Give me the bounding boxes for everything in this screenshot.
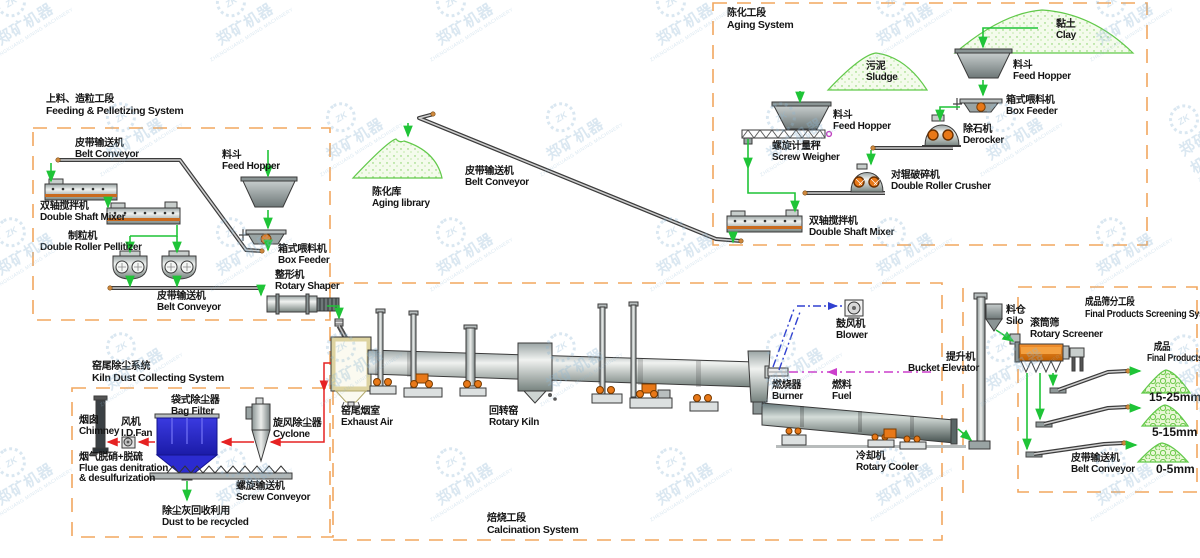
label-en: Cyclone bbox=[273, 430, 322, 441]
calcination-section-title: 焙烧工段 Calcination System bbox=[487, 514, 578, 535]
label-silo: 料仓 Silo bbox=[1006, 306, 1025, 327]
label-en: Chimney bbox=[79, 427, 119, 438]
label-zh: 除尘灰回收利用 bbox=[162, 507, 249, 518]
label-en: Rotary Cooler bbox=[856, 463, 918, 474]
title-zh: 陈化工段 bbox=[727, 9, 793, 20]
label-zh: 旋风除尘器 bbox=[273, 419, 322, 430]
label-chimney: 烟囱 Chimney bbox=[79, 416, 119, 437]
label-en: I.D.Fan bbox=[121, 429, 152, 440]
label-zh: 料斗 bbox=[833, 111, 891, 122]
label-en: Feed Hopper bbox=[1013, 72, 1071, 83]
double-roller-crusher bbox=[851, 164, 883, 192]
label-en: Silo bbox=[1006, 317, 1025, 328]
label-zh: 对辊破碎机 bbox=[891, 171, 991, 182]
label-en: Double Shaft Mixer bbox=[809, 228, 894, 239]
label-en: Belt Conveyor bbox=[465, 178, 529, 189]
label-zh: 箱式喂料机 bbox=[278, 245, 329, 256]
title-zh: 成品筛分工段 bbox=[1085, 298, 1200, 309]
label-belt-aging: 皮带输送机 Belt Conveyor bbox=[465, 167, 529, 188]
label-en: Rotary Kiln bbox=[489, 418, 539, 429]
title-zh: 窑尾除尘系统 bbox=[92, 362, 224, 373]
label-en: Blower bbox=[836, 331, 868, 342]
label-en: Box Feeder bbox=[278, 256, 329, 267]
label-zh: 制粒机 bbox=[68, 232, 142, 243]
label-cyclone: 旋风除尘器 Cyclone bbox=[273, 419, 322, 440]
label-zh: 窑尾烟室 bbox=[341, 407, 393, 418]
label-zh: 黏土 bbox=[1056, 20, 1076, 31]
box-feeder-feeding bbox=[239, 229, 286, 244]
label-screw-weigher: 螺旋计量秤 Screw Weigher bbox=[772, 142, 840, 163]
derocker bbox=[922, 115, 961, 146]
label-belt-conveyor-bottom: 皮带输送机 Belt Conveyor bbox=[157, 292, 221, 313]
exhaust-air-chamber bbox=[331, 337, 371, 407]
label-zh: 皮带输送机 bbox=[1071, 454, 1135, 465]
screening-belt-2 bbox=[1036, 405, 1130, 427]
calcination-equipment bbox=[331, 300, 966, 449]
label-dust-recycled: 除尘灰回收利用 Dust to be recycled bbox=[162, 507, 249, 528]
label-belt-screening: 皮带输送机 Belt Conveyor bbox=[1071, 454, 1135, 475]
size-text: 0-5mm bbox=[1156, 464, 1195, 475]
aging-library-pile bbox=[353, 139, 442, 178]
label-screw-conveyor: 螺旋输送机 Screw Conveyor bbox=[236, 482, 310, 503]
label-zh: 皮带输送机 bbox=[465, 167, 529, 178]
blower-icon bbox=[845, 300, 863, 319]
label-en: Bucket Elevator bbox=[908, 364, 979, 375]
label-zh: 双轴搅拌机 bbox=[40, 202, 125, 213]
label-zh: 燃料 bbox=[832, 381, 851, 392]
label-crusher: 对辊破碎机 Double Roller Crusher bbox=[891, 171, 991, 192]
title-en: Feeding & Pelletizing System bbox=[46, 106, 183, 117]
label-size-5-15: 5-15mm bbox=[1152, 427, 1197, 438]
feeding-bottom-belt bbox=[108, 286, 264, 290]
label-mixer-aging: 双轴搅拌机 Double Shaft Mixer bbox=[809, 217, 894, 238]
label-feed-hopper-clay: 料斗 Feed Hopper bbox=[1013, 61, 1071, 82]
label-en: Fuel bbox=[832, 392, 851, 403]
label-zh: 燃烧器 bbox=[772, 381, 803, 392]
label-zh: 烟气脱硝+脱硫 bbox=[79, 453, 168, 464]
label-en: Sludge bbox=[866, 73, 898, 84]
label-zh: 料斗 bbox=[1013, 61, 1071, 72]
size-text: 5-15mm bbox=[1152, 427, 1197, 438]
label-en: Belt Conveyor bbox=[75, 150, 139, 161]
title-en: Kiln Dust Collecting System bbox=[92, 373, 224, 384]
label-feed-hopper-feeding: 料斗 Feed Hopper bbox=[222, 151, 280, 172]
label-en: Bag Filter bbox=[171, 407, 220, 418]
label-zh: 冷却机 bbox=[856, 452, 918, 463]
cyclone bbox=[246, 398, 270, 461]
label-blower: 鼓风机 Blower bbox=[836, 320, 868, 341]
label-belt-conveyor-top: 皮带输送机 Belt Conveyor bbox=[75, 139, 139, 160]
label-en: Double Roller Crusher bbox=[891, 182, 991, 193]
dust-section-title: 窑尾除尘系统 Kiln Dust Collecting System bbox=[92, 362, 224, 383]
label-en: Feed Hopper bbox=[222, 162, 280, 173]
product-pile-0-5 bbox=[1138, 443, 1188, 462]
label-en: Clay bbox=[1056, 31, 1076, 42]
label-fuel: 燃料 Fuel bbox=[832, 381, 851, 402]
label-sludge: 污泥 Sludge bbox=[866, 62, 898, 83]
label-exhaust-air: 窑尾烟室 Exhaust Air bbox=[341, 407, 393, 428]
double-roller-pellitizer-1 bbox=[113, 251, 147, 279]
label-zh: 料仓 bbox=[1006, 306, 1025, 317]
label-en: Final Products bbox=[1147, 354, 1200, 365]
double-shaft-mixer-1 bbox=[45, 179, 117, 200]
label-zh: 整形机 bbox=[275, 271, 339, 282]
label-rotary-kiln: 回转窑 Rotary Kiln bbox=[489, 407, 539, 428]
label-en: Screw Conveyor bbox=[236, 493, 310, 504]
double-roller-pellitizer-2 bbox=[162, 251, 196, 279]
label-zh: 鼓风机 bbox=[836, 320, 868, 331]
label-box-feeder-feeding: 箱式喂料机 Box Feeder bbox=[278, 245, 329, 266]
label-zh: 污泥 bbox=[866, 62, 898, 73]
label-zh: 除石机 bbox=[963, 125, 1004, 136]
label-zh: 成品 bbox=[1154, 343, 1200, 354]
burner bbox=[765, 366, 788, 378]
feed-hopper-sludge bbox=[772, 102, 831, 129]
label-zh: 滚筒筛 bbox=[1030, 319, 1103, 330]
screw-conveyor bbox=[150, 466, 292, 479]
silo bbox=[986, 304, 1002, 331]
kiln-mid-chamber bbox=[518, 343, 557, 403]
label-zh: 皮带输送机 bbox=[157, 292, 221, 303]
label-zh: 皮带输送机 bbox=[75, 139, 139, 150]
label-size-15-25: 15-25mm bbox=[1149, 392, 1200, 403]
feeding-section-title: 上料、造粒工段 Feeding & Pelletizing System bbox=[46, 95, 183, 116]
label-box-feeder-clay: 箱式喂料机 Box Feeder bbox=[1006, 96, 1057, 117]
diagram-canvas bbox=[0, 0, 1200, 558]
label-zh: 双轴搅拌机 bbox=[809, 217, 894, 228]
label-rotary-screener: 滚筒筛 Rotary Screener bbox=[1030, 319, 1103, 340]
label-derocker: 除石机 Derocker bbox=[963, 125, 1004, 146]
label-en: Belt Conveyor bbox=[1071, 465, 1135, 476]
aging-section-title: 陈化工段 Aging System bbox=[727, 9, 793, 30]
label-en: Double Roller Pellitizer bbox=[40, 243, 142, 254]
label-zh: 螺旋输送机 bbox=[236, 482, 310, 493]
label-feed-hopper-sludge: 料斗 Feed Hopper bbox=[833, 111, 891, 132]
label-en: Dust to be recycled bbox=[162, 518, 249, 529]
label-en: Burner bbox=[772, 392, 803, 403]
label-en: Feed Hopper bbox=[833, 122, 891, 133]
clay-pile bbox=[955, 10, 1133, 53]
label-bucket-elevator: 提升机 Bucket Elevator bbox=[908, 353, 979, 374]
title-zh: 上料、造粒工段 bbox=[46, 95, 183, 106]
label-rotary-shaper: 整形机 Rotary Shaper bbox=[275, 271, 339, 292]
label-en: Aging library bbox=[372, 199, 430, 210]
label-zh: 箱式喂料机 bbox=[1006, 96, 1057, 107]
product-pile-5-15 bbox=[1142, 405, 1188, 426]
label-size-0-5: 0-5mm bbox=[1156, 464, 1195, 475]
label-en: Derocker bbox=[963, 136, 1004, 147]
process-flow-diagram: 上料、造粒工段 Feeding & Pelletizing System 陈化工… bbox=[0, 0, 1200, 558]
label-en: & desulfurization bbox=[79, 474, 168, 485]
double-shaft-mixer-aging bbox=[727, 210, 802, 232]
label-en: Rotary Shaper bbox=[275, 282, 339, 293]
label-aging-library: 陈化库 Aging library bbox=[372, 188, 430, 209]
label-clay: 黏土 Clay bbox=[1056, 20, 1076, 41]
label-en: Box Feeder bbox=[1006, 107, 1057, 118]
label-zh: 回转窑 bbox=[489, 407, 539, 418]
label-zh: 提升机 bbox=[946, 353, 979, 364]
box-feeder-clay bbox=[953, 98, 1002, 112]
title-en: Final Products Screening System bbox=[1085, 309, 1200, 320]
label-zh: 烟囱 bbox=[79, 416, 119, 427]
label-zh: 陈化库 bbox=[372, 188, 430, 199]
label-en: Screw Weigher bbox=[772, 153, 840, 164]
feed-hopper-feeding bbox=[241, 177, 297, 207]
label-flue-gas: 烟气脱硝+脱硫 Flue gas denitration & desulfuri… bbox=[79, 453, 168, 485]
label-zh: 袋式除尘器 bbox=[171, 396, 220, 407]
label-rotary-cooler: 冷却机 Rotary Cooler bbox=[856, 452, 918, 473]
air-line bbox=[773, 302, 844, 370]
title-en: Aging System bbox=[727, 20, 793, 31]
label-zh: 螺旋计量秤 bbox=[772, 142, 840, 153]
label-en: Double Shaft Mixer bbox=[40, 213, 125, 224]
label-burner: 燃烧器 Burner bbox=[772, 381, 803, 402]
size-text: 15-25mm bbox=[1149, 392, 1200, 403]
screening-belt-1 bbox=[1050, 369, 1130, 393]
label-en: Rotary Screener bbox=[1030, 330, 1103, 341]
label-en: Exhaust Air bbox=[341, 418, 393, 429]
title-zh: 焙烧工段 bbox=[487, 514, 578, 525]
title-en: Calcination System bbox=[487, 525, 578, 536]
rotary-shaper bbox=[267, 294, 339, 314]
label-bag-filter: 袋式除尘器 Bag Filter bbox=[171, 396, 220, 417]
screening-section-title: 成品筛分工段 Final Products Screening System bbox=[1085, 298, 1200, 319]
label-mixer-feeding: 双轴搅拌机 Double Shaft Mixer bbox=[40, 202, 125, 223]
label-id-fan: 风机 I.D.Fan bbox=[121, 418, 152, 439]
label-final-products: 成品 Final Products bbox=[1147, 343, 1200, 364]
label-en: Belt Conveyor bbox=[157, 303, 221, 314]
feed-hopper-clay bbox=[955, 49, 1012, 78]
label-zh: 风机 bbox=[121, 418, 152, 429]
rotary-cooler bbox=[762, 403, 966, 449]
label-pellitizer: 制粒机 Double Roller Pellitizer bbox=[40, 232, 142, 253]
label-zh: 料斗 bbox=[222, 151, 280, 162]
